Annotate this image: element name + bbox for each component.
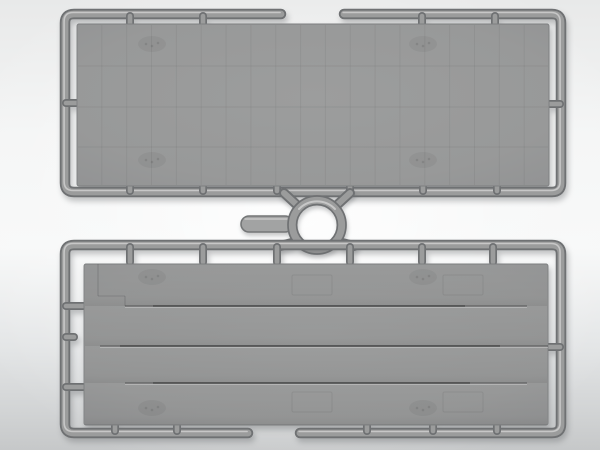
- panel-band-shade: [85, 306, 547, 346]
- sprue-photo: [0, 0, 600, 450]
- surface-smudge: [138, 400, 166, 416]
- panel-band-shade: [85, 346, 547, 383]
- surface-dot: [416, 407, 419, 410]
- surface-dot: [428, 406, 431, 409]
- surface-dot: [422, 45, 425, 48]
- surface-dot: [428, 158, 431, 161]
- surface-dot: [151, 45, 154, 48]
- surface-dot: [422, 278, 425, 281]
- surface-smudge: [409, 269, 437, 285]
- surface-smudge: [409, 152, 437, 168]
- surface-dot: [157, 275, 160, 278]
- bottom-sprue: [64, 244, 561, 434]
- surface-dot: [157, 42, 160, 45]
- surface-dot: [422, 409, 425, 412]
- surface-dot: [422, 161, 425, 164]
- surface-dot: [428, 42, 431, 45]
- surface-dot: [157, 158, 160, 161]
- surface-smudge: [138, 36, 166, 52]
- surface-dot: [151, 278, 154, 281]
- surface-dot: [416, 159, 419, 162]
- surface-dot: [416, 276, 419, 279]
- surface-smudge: [409, 36, 437, 52]
- surface-dot: [151, 409, 154, 412]
- surface-dot: [416, 43, 419, 46]
- top-sprue: [64, 13, 561, 193]
- surface-dot: [145, 407, 148, 410]
- surface-dot: [145, 159, 148, 162]
- surface-dot: [151, 161, 154, 164]
- surface-smudge: [138, 269, 166, 285]
- surface-dot: [145, 43, 148, 46]
- surface-dot: [145, 276, 148, 279]
- surface-dot: [157, 406, 160, 409]
- surface-dot: [428, 275, 431, 278]
- photo-canvas: [0, 0, 600, 450]
- surface-smudge: [138, 152, 166, 168]
- surface-smudge: [409, 400, 437, 416]
